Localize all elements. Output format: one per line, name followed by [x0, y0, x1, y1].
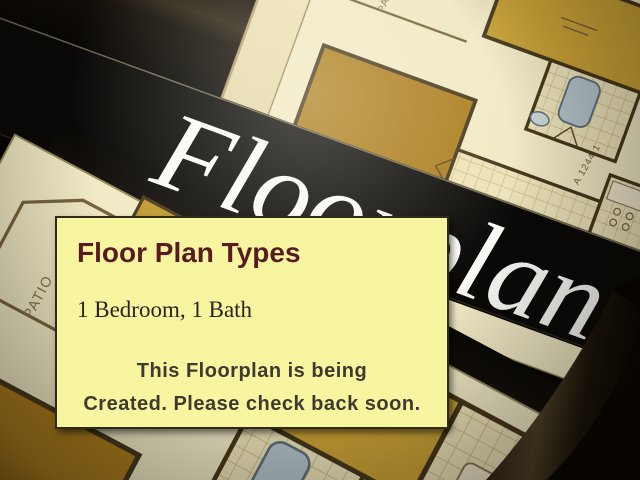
status-message: This Floorplan is being Created. Please …: [77, 355, 427, 421]
status-message-line2: Created. Please check back soon.: [77, 388, 427, 421]
unit-type-text: 1 Bedroom, 1 Bath: [77, 296, 427, 324]
status-message-line1: This Floorplan is being: [77, 355, 427, 388]
floorplan-info-panel: Floor Plan Types 1 Bedroom, 1 Bath This …: [55, 216, 449, 429]
panel-title: Floor Plan Types: [77, 236, 427, 270]
floorplans-page: PATIO A 1244.1 Floorp: [0, 0, 640, 480]
